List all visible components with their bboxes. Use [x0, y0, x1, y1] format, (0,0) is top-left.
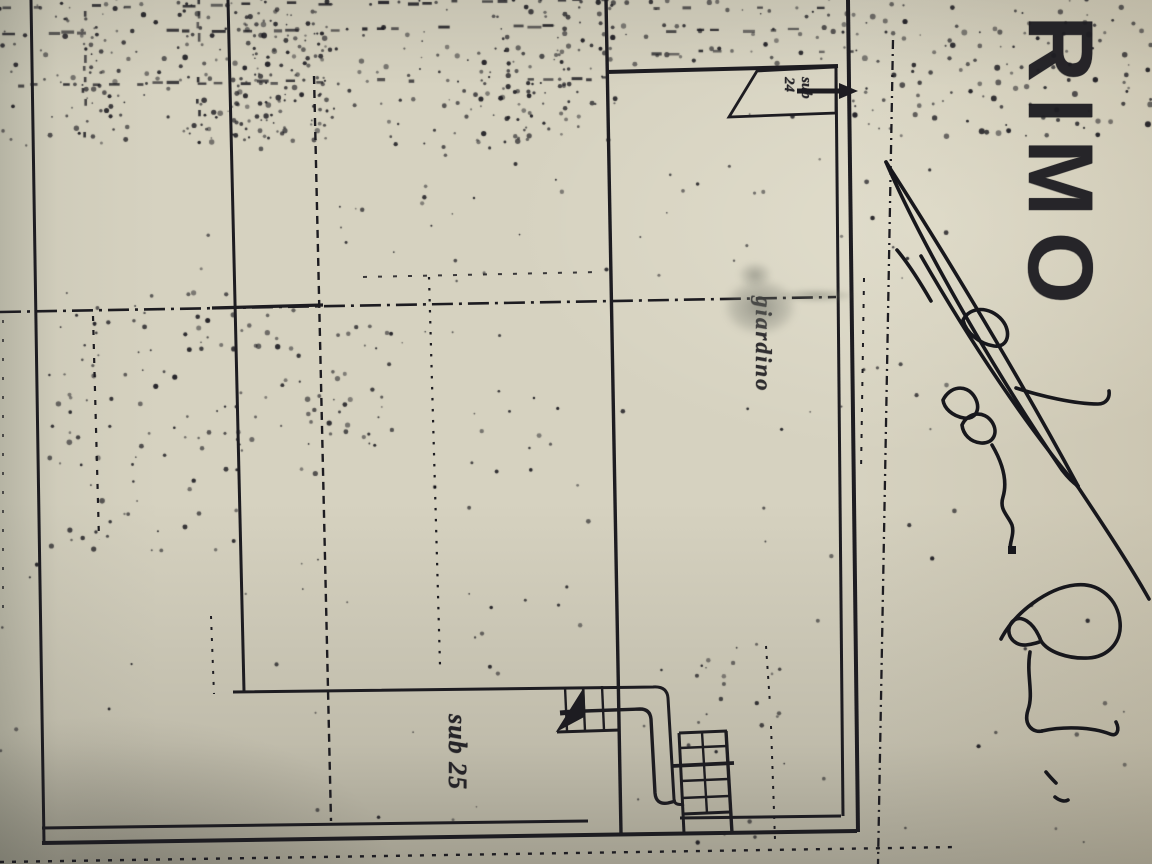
- floor-title-label: PRIMO: [1014, 0, 1106, 320]
- scanned-floor-plan-photo: PRIMO giardino sub 25 sub 24: [0, 0, 1152, 864]
- stair-direction-arrow: [557, 688, 585, 731]
- flag-label-line1: sub: [798, 77, 814, 99]
- garden-label: giardino: [751, 296, 775, 393]
- floor-plan-drawing: [0, 0, 1152, 864]
- flag-sub-24-label: sub 24: [780, 77, 814, 99]
- staircase: [557, 686, 734, 833]
- sub-25-unit-label: sub 25: [444, 714, 470, 790]
- flag-label-line2: 24: [781, 77, 797, 92]
- wall-lines: [0, 0, 958, 864]
